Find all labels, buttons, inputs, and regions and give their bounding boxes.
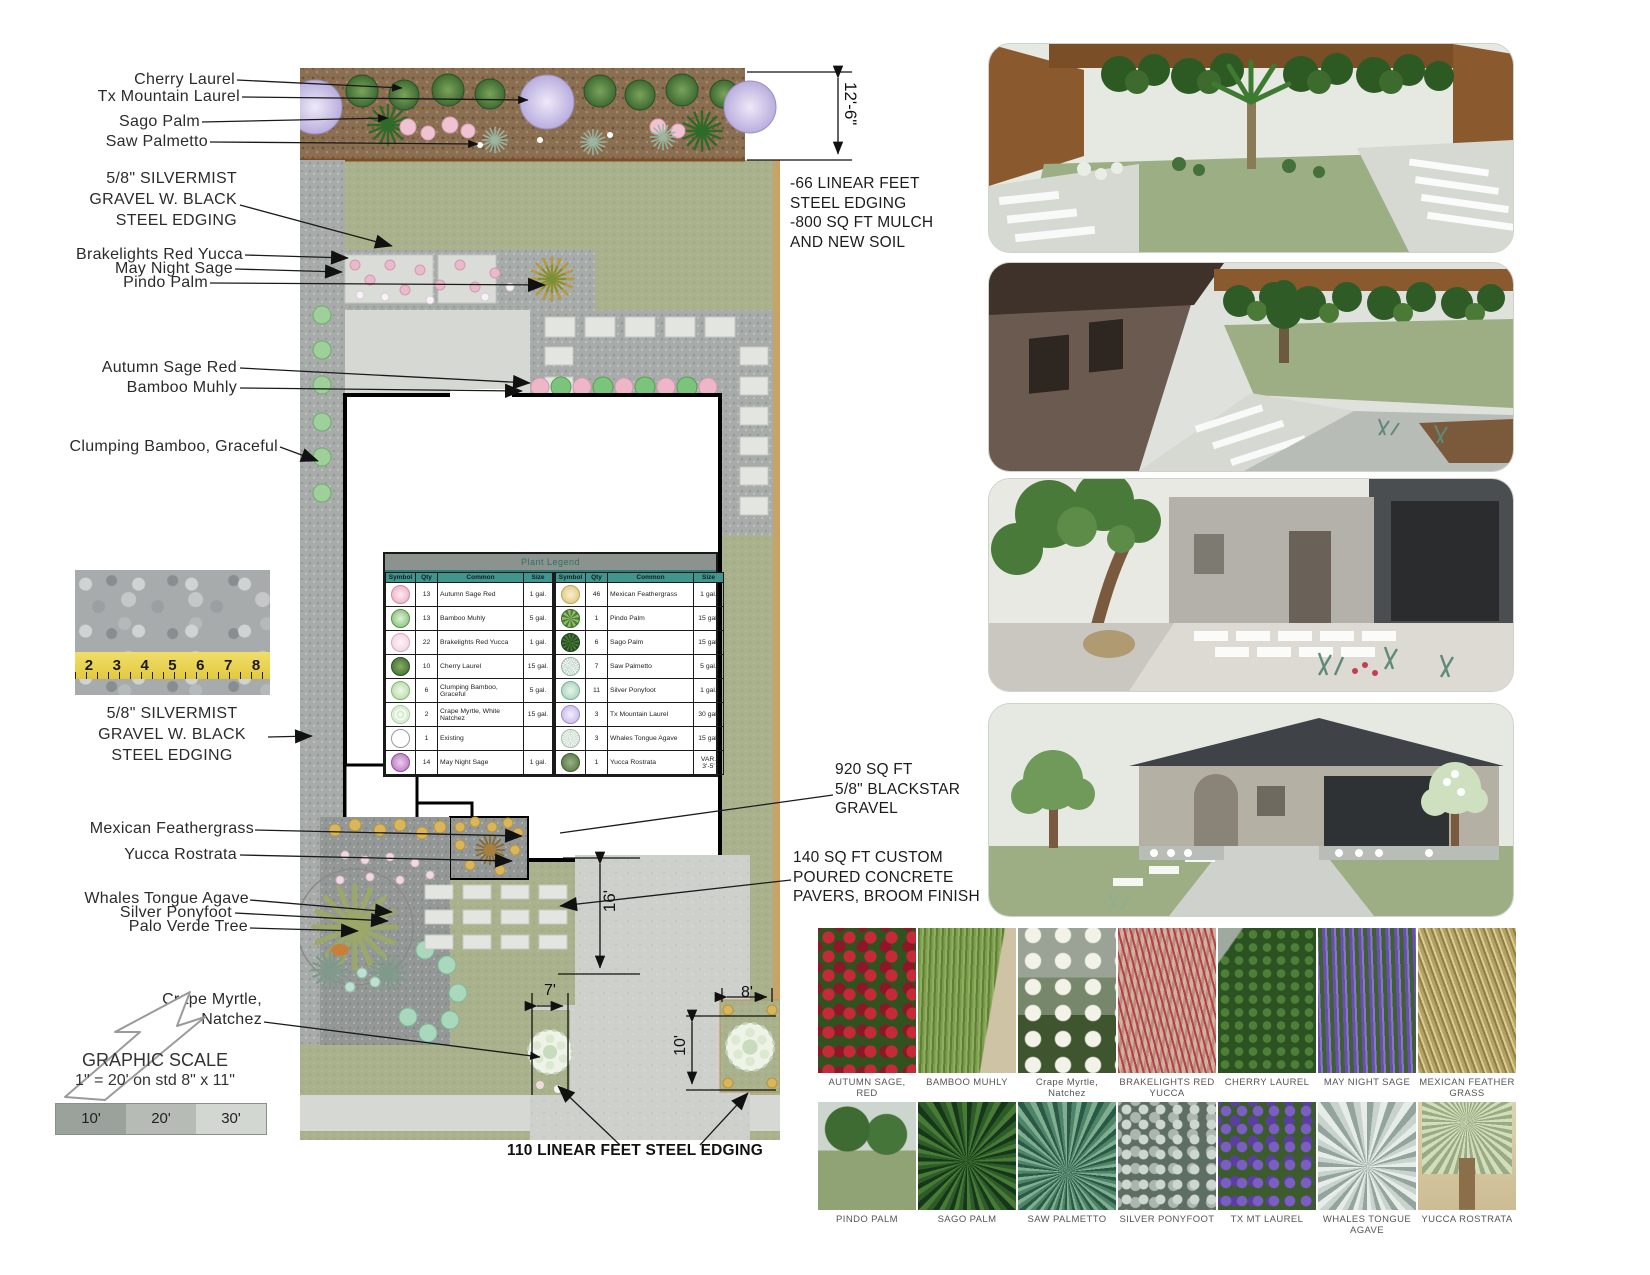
callout-bamboo-muhly: Bamboo Muhly <box>37 379 237 396</box>
legend-row: 6 Sago Palm 15 gal. <box>556 631 724 655</box>
plant-photo-label: Crape Myrtle, Natchez <box>1036 1077 1098 1099</box>
plant-thumbnail: SAGO PALM <box>918 1102 1016 1236</box>
ruler-number: 4 <box>140 657 148 674</box>
callout-sago-palm: Sago Palm <box>0 113 200 130</box>
plant-size: 5 gal. <box>524 607 554 631</box>
plant-legend: Plant Legend Symbol Qty Common Size 13 A… <box>383 552 718 777</box>
callout-cherry-laurel: Cherry Laurel <box>35 71 235 88</box>
plant-size: 15 gal. <box>694 631 724 655</box>
plant-symbol <box>391 585 410 604</box>
legend-header-size: Size <box>694 573 724 583</box>
plant-common-name: Mexican Feathergrass <box>608 583 694 607</box>
plant-qty: 6 <box>416 679 438 703</box>
plant-photo-label: MEXICAN FEATHER GRASS <box>1419 1077 1515 1099</box>
plant-symbol <box>391 753 410 772</box>
plant-symbol <box>561 657 580 676</box>
legend-row: 13 Autumn Sage Red 1 gal. <box>386 583 554 607</box>
plant-thumbnail: AUTUMN SAGE, RED <box>818 928 916 1099</box>
plant-common-name: Saw Palmetto <box>608 655 694 679</box>
plant-common-name: Pindo Palm <box>608 607 694 631</box>
plant-size: 15 gal. <box>694 727 724 751</box>
plant-common-name: Whales Tongue Agave <box>608 727 694 751</box>
ruler-number: 5 <box>168 657 176 674</box>
plant-photo <box>1118 928 1216 1073</box>
plant-common-name: Clumping Bamboo, Graceful <box>438 679 524 703</box>
plant-symbol <box>391 657 410 676</box>
legend-row: 14 May Night Sage 1 gal. <box>386 751 554 775</box>
legend-header-size: Size <box>524 573 554 583</box>
callout-mexican-feathergrass: Mexican Feathergrass <box>34 820 254 837</box>
plant-photo-label: PINDO PALM <box>836 1214 898 1225</box>
plant-thumbnail: MEXICAN FEATHER GRASS <box>1418 928 1516 1099</box>
plant-symbol <box>561 681 580 700</box>
plant-size: 1 gal. <box>524 631 554 655</box>
plant-photo <box>1118 1102 1216 1210</box>
plant-qty: 11 <box>586 679 608 703</box>
legend-row: 11 Silver Ponyfoot 1 gal. <box>556 679 724 703</box>
legend-header-common: Common <box>438 573 524 583</box>
plant-size: 5 gal. <box>694 655 724 679</box>
plant-photo-label: SILVER PONYFOOT <box>1119 1214 1214 1225</box>
plant-common-name: Autumn Sage Red <box>438 583 524 607</box>
callout-clumping-bamboo: Clumping Bamboo, Graceful <box>20 438 278 455</box>
dimension-10: 10' <box>672 1035 690 1056</box>
dimension-7: 7' <box>528 982 572 1000</box>
plant-thumbnail: WHALES TONGUE AGAVE <box>1318 1102 1416 1236</box>
ruler-number: 8 <box>252 657 260 674</box>
plant-qty: 1 <box>586 751 608 775</box>
plant-qty: 1 <box>586 607 608 631</box>
plant-photo <box>1218 928 1316 1073</box>
plant-common-name: Brakelights Red Yucca <box>438 631 524 655</box>
plant-common-name: Tx Mountain Laurel <box>608 703 694 727</box>
plant-photo-row-1: AUTUMN SAGE, RED BAMBOO MUHLY Crape Myrt… <box>818 928 1516 1099</box>
plant-thumbnail: SILVER PONYFOOT <box>1118 1102 1216 1236</box>
plant-photo-label: CHERRY LAUREL <box>1225 1077 1310 1088</box>
plant-symbol <box>561 729 580 748</box>
plant-thumbnail: BAMBOO MUHLY <box>918 928 1016 1099</box>
plant-symbol <box>391 609 410 628</box>
gravel-sample-photo: 2345678 <box>75 570 270 695</box>
legend-table-left: Symbol Qty Common Size 13 Autumn Sage Re… <box>385 572 555 775</box>
legend-header-common: Common <box>608 573 694 583</box>
ruler-number: 6 <box>196 657 204 674</box>
plant-thumbnail: TX MT LAUREL <box>1218 1102 1316 1236</box>
plant-common-name: Crape Myrtle, White Natchez <box>438 703 524 727</box>
legend-row: 2 Crape Myrtle, White Natchez 15 gal. <box>386 703 554 727</box>
plant-common-name: Existing <box>438 727 524 751</box>
dimension-16: 16' <box>600 890 620 912</box>
plant-size <box>524 727 554 751</box>
graphic-scale-title: GRAPHIC SCALE <box>60 1050 250 1071</box>
plant-size: 5 gal. <box>524 679 554 703</box>
plant-symbol <box>561 609 580 628</box>
render-side-yard-view <box>988 262 1514 472</box>
plant-symbol <box>561 705 580 724</box>
callout-yucca-rostrata: Yucca Rostrata <box>37 846 237 863</box>
plant-photo-label: BAMBOO MUHLY <box>926 1077 1008 1088</box>
plant-qty: 10 <box>416 655 438 679</box>
annotation-110-linear-feet: 110 LINEAR FEET STEEL EDGING <box>495 1142 775 1160</box>
legend-header-qty: Qty <box>586 573 608 583</box>
plant-thumbnail: BRAKELIGHTS RED YUCCA <box>1118 928 1216 1099</box>
legend-row: 1 Yucca Rostrata VAR. 3'-5' <box>556 751 724 775</box>
legend-row: 10 Cherry Laurel 15 gal. <box>386 655 554 679</box>
legend-header-symbol: Symbol <box>556 573 586 583</box>
legend-row: 7 Saw Palmetto 5 gal. <box>556 655 724 679</box>
plant-thumbnail: SAW PALMETTO <box>1018 1102 1116 1236</box>
callout-silvermist-bottom: 5/8" SILVERMIST GRAVEL W. BLACK STEEL ED… <box>72 703 272 766</box>
plant-photo <box>1418 1102 1516 1210</box>
ruler-number: 2 <box>85 657 93 674</box>
plant-size: 30 gal. <box>694 703 724 727</box>
legend-title: Plant Legend <box>385 554 716 572</box>
legend-row: 1 Existing <box>386 727 554 751</box>
plant-photo-label: YUCCA ROSTRATA <box>1421 1214 1512 1225</box>
plant-common-name: Silver Ponyfoot <box>608 679 694 703</box>
plant-photo-label: TX MT LAUREL <box>1231 1214 1304 1225</box>
plant-photo <box>1018 928 1116 1073</box>
legend-row: 1 Pindo Palm 15 gal. <box>556 607 724 631</box>
plant-common-name: Sago Palm <box>608 631 694 655</box>
callout-silvermist-top: 5/8" SILVERMIST GRAVEL W. BLACK STEEL ED… <box>37 168 237 231</box>
plant-photo <box>1318 1102 1416 1210</box>
plant-qty: 22 <box>416 631 438 655</box>
plant-qty: 13 <box>416 583 438 607</box>
plant-symbol <box>561 753 580 772</box>
plant-common-name: Cherry Laurel <box>438 655 524 679</box>
plant-photo <box>1418 928 1516 1073</box>
plant-photo <box>918 928 1016 1073</box>
plant-qty: 6 <box>586 631 608 655</box>
plant-size: 1 gal. <box>694 583 724 607</box>
legend-row: 22 Brakelights Red Yucca 1 gal. <box>386 631 554 655</box>
scale-segment: 20' <box>126 1104 196 1134</box>
plant-photo <box>1018 1102 1116 1210</box>
legend-header-qty: Qty <box>416 573 438 583</box>
legend-row: 3 Tx Mountain Laurel 30 gal. <box>556 703 724 727</box>
plant-photo <box>818 928 916 1073</box>
plant-qty: 1 <box>416 727 438 751</box>
plant-thumbnail: PINDO PALM <box>818 1102 916 1236</box>
plant-photo-label: AUTUMN SAGE, RED <box>818 1077 916 1099</box>
annotation-edging-mulch: -66 LINEAR FEET STEEL EDGING -800 SQ FT … <box>790 174 933 252</box>
callout-saw-palmetto: Saw Palmetto <box>8 133 208 150</box>
render-front-entry-view <box>988 478 1514 692</box>
plant-common-name: Bamboo Muhly <box>438 607 524 631</box>
plant-symbol <box>391 681 410 700</box>
dimension-12-6: 12'-6" <box>840 82 860 125</box>
plant-photo-row-2: PINDO PALM SAGO PALM SAW PALMETTO SILVER… <box>818 1102 1516 1236</box>
plant-size: 15 gal. <box>694 607 724 631</box>
plant-size: 1 gal. <box>524 751 554 775</box>
plant-photo <box>818 1102 916 1210</box>
plant-size: 15 gal. <box>524 655 554 679</box>
annotation-blackstar-gravel: 920 SQ FT 5/8" BLACKSTAR GRAVEL <box>835 760 960 819</box>
plant-photo <box>918 1102 1016 1210</box>
plant-photo-label: WHALES TONGUE AGAVE <box>1323 1214 1411 1236</box>
plant-size: VAR. 3'-5' <box>694 751 724 775</box>
plant-size: 1 gal. <box>694 679 724 703</box>
plant-common-name: Yucca Rostrata <box>608 751 694 775</box>
plant-qty: 46 <box>586 583 608 607</box>
annotation-concrete-pavers: 140 SQ FT CUSTOM POURED CONCRETE PAVERS,… <box>793 848 980 907</box>
plant-qty: 3 <box>586 703 608 727</box>
legend-row: 3 Whales Tongue Agave 15 gal. <box>556 727 724 751</box>
legend-table-right: Symbol Qty Common Size 46 Mexican Feathe… <box>555 572 724 775</box>
plant-qty: 7 <box>586 655 608 679</box>
plant-size: 1 gal. <box>524 583 554 607</box>
plant-qty: 14 <box>416 751 438 775</box>
plant-thumbnail: CHERRY LAUREL <box>1218 928 1316 1099</box>
plant-photo-label: SAGO PALM <box>938 1214 997 1225</box>
legend-row: 13 Bamboo Muhly 5 gal. <box>386 607 554 631</box>
plant-photo <box>1218 1102 1316 1210</box>
plant-thumbnail: MAY NIGHT SAGE <box>1318 928 1416 1099</box>
plant-size: 15 gal. <box>524 703 554 727</box>
legend-row: 46 Mexican Feathergrass 1 gal. <box>556 583 724 607</box>
callout-pindo-palm: Pindo Palm <box>8 274 208 291</box>
plant-photo-label: SAW PALMETTO <box>1027 1214 1106 1225</box>
plant-qty: 2 <box>416 703 438 727</box>
legend-header-symbol: Symbol <box>386 573 416 583</box>
ruler-number: 3 <box>113 657 121 674</box>
plant-symbol <box>561 633 580 652</box>
landscape-plan-sheet: { "callouts": { "cherry_laurel": "Cherry… <box>0 0 1650 1275</box>
plant-symbol <box>391 705 410 724</box>
tape-measure: 2345678 <box>75 652 270 679</box>
dimension-8: 8' <box>725 984 769 1002</box>
plant-symbol <box>561 585 580 604</box>
render-front-house-view <box>988 703 1514 917</box>
plant-qty: 13 <box>416 607 438 631</box>
plant-common-name: May Night Sage <box>438 751 524 775</box>
scale-segment: 10' <box>56 1104 126 1134</box>
render-backyard-view <box>988 43 1514 253</box>
scale-segment: 30' <box>196 1104 266 1134</box>
plant-photo-label: MAY NIGHT SAGE <box>1324 1077 1410 1088</box>
plant-symbol <box>391 729 410 748</box>
plant-photo-label: BRAKELIGHTS RED YUCCA <box>1119 1077 1214 1099</box>
ruler-number: 7 <box>224 657 232 674</box>
legend-row: 6 Clumping Bamboo, Graceful 5 gal. <box>386 679 554 703</box>
plant-symbol <box>391 633 410 652</box>
callout-tx-mountain-laurel: Tx Mountain Laurel <box>40 88 240 105</box>
graphic-scale-subtitle: 1" = 20' on std 8" x 11" <box>38 1072 272 1090</box>
plant-thumbnail: YUCCA ROSTRATA <box>1418 1102 1516 1236</box>
plant-photo <box>1318 928 1416 1073</box>
callout-autumn-sage-red: Autumn Sage Red <box>37 359 237 376</box>
plant-qty: 3 <box>586 727 608 751</box>
callout-palo-verde-tree: Palo Verde Tree <box>48 918 248 935</box>
graphic-scale-bar: 10'20'30' <box>55 1103 267 1135</box>
plant-thumbnail: Crape Myrtle, Natchez <box>1018 928 1116 1099</box>
